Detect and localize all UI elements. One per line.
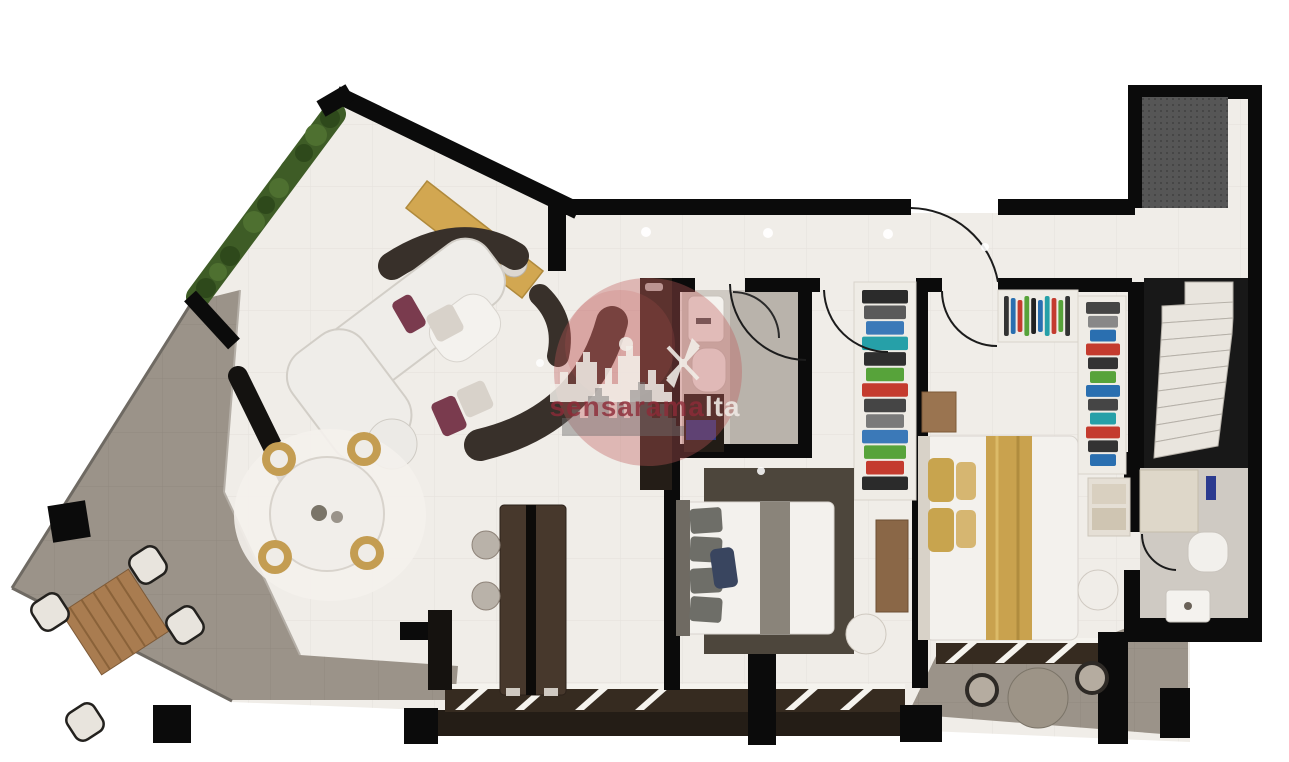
- bedroom2-closet-top: [998, 290, 1078, 342]
- bar-stool: [472, 531, 500, 559]
- clothes-item: [1090, 454, 1116, 466]
- shaft-left-wall-upper: [1128, 85, 1142, 208]
- shaft-right-wall: [1248, 85, 1262, 630]
- clothes-item: [1031, 298, 1036, 334]
- clothes-item: [1090, 371, 1116, 383]
- clothes-item: [864, 445, 906, 459]
- clothes-item: [1004, 296, 1009, 336]
- hallway-top-wall-right: [998, 199, 1135, 215]
- clothes-item: [1011, 298, 1016, 334]
- window-pillar: [900, 705, 942, 742]
- clothes-item: [866, 461, 904, 475]
- bathroom2-toilet: [1188, 532, 1228, 572]
- south-fascia: [437, 710, 907, 736]
- clothes-item: [1065, 296, 1070, 336]
- bathroom1-right-wall: [798, 278, 812, 458]
- clothes-item: [1090, 413, 1116, 425]
- floor-plan-canvas: sensaramalta: [0, 0, 1289, 762]
- rear-chair: [1077, 663, 1107, 693]
- clothes-item: [1052, 298, 1057, 334]
- clothes-item: [866, 321, 904, 335]
- terrace-pillar: [47, 500, 90, 542]
- clothes-item: [1018, 300, 1023, 332]
- rear-round-table: [1008, 668, 1068, 728]
- blue-towel: [1206, 476, 1216, 500]
- watermark-text: sensaramalta: [549, 391, 740, 422]
- clothes-item: [1086, 427, 1120, 439]
- dining-set: [234, 429, 426, 601]
- clothes-item: [1038, 300, 1043, 332]
- shaft-left-wall-lower: [1128, 282, 1144, 468]
- clothes-item: [864, 399, 906, 413]
- hall-wardrobe: [854, 282, 916, 500]
- clothes-item: [862, 383, 908, 397]
- clothes-item: [1086, 344, 1120, 356]
- clothes-item: [866, 368, 904, 382]
- shaft-texture: [1142, 97, 1228, 208]
- terrace-pillar: [153, 705, 191, 743]
- clothes-item: [1058, 300, 1063, 332]
- bed-runner: [760, 502, 790, 634]
- bedroom2-nightstand: [922, 392, 956, 432]
- clothes-item: [864, 306, 906, 320]
- bedroom2-stool: [1078, 570, 1118, 610]
- clothes-item: [862, 430, 908, 444]
- bedroom1-chair: [846, 614, 886, 654]
- bar-stool: [472, 582, 500, 610]
- corner-stub-wall: [548, 199, 566, 271]
- clothes-item: [862, 476, 908, 490]
- rear-chair: [967, 675, 997, 705]
- clothes-item: [1090, 330, 1116, 342]
- clothes-item: [1088, 316, 1118, 328]
- clothes-item: [1024, 296, 1029, 336]
- bedroom1-dresser: [876, 520, 908, 612]
- shaft-top-wall: [1128, 85, 1262, 99]
- window-pillar: [404, 708, 438, 744]
- clothes-item: [866, 414, 904, 428]
- hallway-top-wall: [548, 199, 911, 215]
- floor-plan-render: sensaramalta: [0, 0, 1289, 762]
- kitchen-bench: [428, 610, 452, 690]
- gold-blanket: [986, 436, 1032, 640]
- clothes-item: [1086, 385, 1120, 397]
- clothes-item: [1045, 296, 1050, 336]
- hall-south-wall: [916, 278, 942, 292]
- clothes-item: [1088, 440, 1118, 452]
- clothes-item: [1088, 357, 1118, 369]
- bedroom1-headboard: [676, 500, 690, 636]
- clothes-item: [862, 337, 908, 351]
- clothes-item: [1086, 302, 1120, 314]
- clothes-item: [1088, 399, 1118, 411]
- clothes-item: [862, 290, 908, 304]
- bathroom2-shelf: [1140, 470, 1198, 532]
- clothes-item: [864, 352, 906, 366]
- rear-terrace-pillar: [1160, 688, 1190, 738]
